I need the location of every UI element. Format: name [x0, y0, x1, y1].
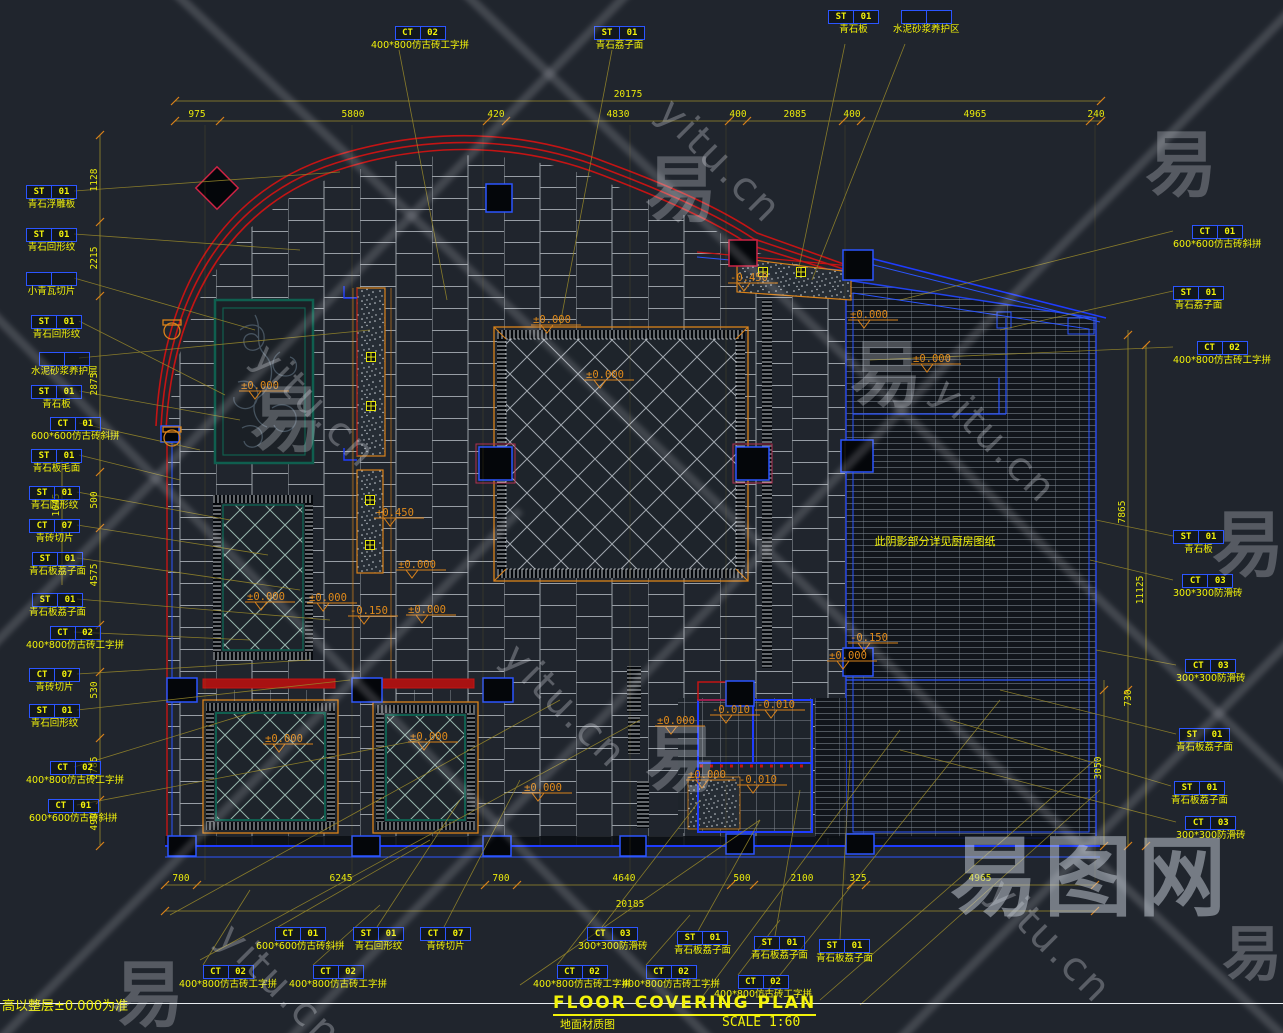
svg-text:-0.010: -0.010 — [739, 774, 777, 786]
svg-text:-0.150: -0.150 — [850, 632, 888, 644]
cad-canvas[interactable]: ±0.000 ±0.000 ±0.000 ±0.000 -0.450 +0.45… — [0, 0, 1283, 1033]
svg-text:±0.000: ±0.000 — [241, 380, 279, 392]
svg-text:2085: 2085 — [784, 109, 807, 120]
svg-text:4965: 4965 — [969, 873, 992, 884]
bottom-lattice-square-b — [373, 702, 478, 833]
material-label-right-5: CT03300*300防滑砖 — [1176, 659, 1246, 684]
material-label-top-3: 水泥砂浆养护区 — [893, 10, 960, 35]
svg-text:2215: 2215 — [89, 247, 100, 270]
svg-text:±0.000: ±0.000 — [913, 353, 951, 365]
svg-text:±0.000: ±0.000 — [657, 715, 695, 727]
material-label-left-12: CT02400*800仿古砖工字拼 — [26, 626, 124, 651]
tick-wall — [762, 300, 772, 668]
svg-text:±0.000: ±0.000 — [408, 604, 446, 616]
svg-text:±0.000: ±0.000 — [410, 731, 448, 743]
material-label-left-14: ST01青石回形纹 — [29, 704, 80, 729]
material-label-bottom-0: CT01600*600仿古砖斜拼 — [256, 927, 345, 952]
material-label-left-2: 小青瓦切片 — [26, 272, 77, 297]
svg-text:±0.000: ±0.000 — [829, 650, 867, 662]
material-label-left-15: CT02400*800仿古砖工字拼 — [26, 761, 124, 786]
material-label-bottom-7: CT02400*800仿古砖工字拼 — [179, 965, 277, 990]
svg-text:±0.000: ±0.000 — [309, 592, 347, 604]
svg-text:5800: 5800 — [342, 109, 365, 120]
svg-text:1128: 1128 — [89, 168, 100, 191]
material-label-left-3: ST01青石回形纹 — [31, 315, 82, 340]
bottom-lattice-square-a — [203, 700, 338, 833]
svg-text:±0.000: ±0.000 — [524, 782, 562, 794]
svg-text:530: 530 — [89, 681, 100, 698]
material-label-left-1: ST01青石回形纹 — [26, 228, 77, 253]
material-label-right-3: ST01青石板 — [1173, 530, 1224, 555]
svg-text:±0.000: ±0.000 — [533, 314, 571, 326]
svg-text:±0.000: ±0.000 — [688, 769, 726, 781]
material-label-bottom-9: CT02400*800仿古砖工字拼 — [533, 965, 631, 990]
svg-text:240: 240 — [1087, 109, 1104, 120]
svg-text:4640: 4640 — [613, 873, 636, 884]
material-label-top-1: ST01青石荔子面 — [594, 26, 645, 51]
svg-text:4575: 4575 — [89, 564, 100, 587]
material-label-left-6: CT01600*600仿古砖斜拼 — [31, 417, 120, 442]
material-label-bottom-1: ST01青石回形纹 — [353, 927, 404, 952]
datum-note: 高以整层±0.000为准 — [2, 995, 128, 1014]
svg-text:±0.000: ±0.000 — [850, 309, 888, 321]
svg-text:±0.000: ±0.000 — [586, 369, 624, 381]
svg-text:20185: 20185 — [616, 899, 645, 910]
svg-text:400: 400 — [729, 109, 746, 120]
material-label-top-2: ST01青石板 — [828, 10, 879, 35]
svg-text:-0.010: -0.010 — [757, 699, 795, 711]
svg-text:325: 325 — [849, 873, 866, 884]
material-label-left-5: ST01青石板 — [31, 385, 82, 410]
material-label-left-13: CT07青砖切片 — [29, 668, 80, 693]
drawing-title: FLOOR COVERING PLAN — [553, 993, 816, 1016]
material-label-right-4: CT03300*300防滑砖 — [1173, 574, 1243, 599]
svg-text:500: 500 — [89, 491, 100, 508]
svg-text:400: 400 — [843, 109, 860, 120]
material-label-right-2: CT02400*800仿古砖工字拼 — [1173, 341, 1271, 366]
material-label-bottom-2: CT07青砖切片 — [420, 927, 471, 952]
material-label-left-0: ST01青石浮雕板 — [26, 185, 77, 210]
material-label-bottom-8: CT02400*800仿古砖工字拼 — [289, 965, 387, 990]
svg-text:±0.000: ±0.000 — [247, 591, 285, 603]
svg-text:2100: 2100 — [791, 873, 814, 884]
material-label-left-11: ST01青石板荔子面 — [29, 593, 86, 618]
material-label-bottom-3: CT03300*300防滑砖 — [578, 927, 648, 952]
svg-text:-0.150: -0.150 — [350, 605, 388, 617]
kitchen-note: 此阴影部分详见厨房图纸 — [875, 534, 996, 548]
svg-text:6245: 6245 — [330, 873, 353, 884]
svg-text:730: 730 — [1123, 689, 1134, 706]
material-label-left-10: ST01青石板荔子面 — [29, 552, 86, 577]
svg-text:11125: 11125 — [1135, 576, 1146, 605]
svg-text:±0.000: ±0.000 — [398, 559, 436, 571]
material-label-bottom-6: ST01青石板荔子面 — [816, 939, 873, 964]
drawing-title-cn: 地面材质图 — [560, 1016, 615, 1032]
material-label-left-4: 水泥砂浆养护层 — [31, 352, 98, 377]
material-label-right-6: ST01青石板荔子面 — [1176, 728, 1233, 753]
svg-text:700: 700 — [492, 873, 509, 884]
svg-text:±0.000: ±0.000 — [265, 733, 303, 745]
svg-text:500: 500 — [733, 873, 750, 884]
drawing-scale: SCALE 1:60 — [722, 1015, 800, 1030]
material-label-right-8: CT03300*300防滑砖 — [1176, 816, 1246, 841]
floor-plan-drawing: ±0.000 ±0.000 ±0.000 ±0.000 -0.450 +0.45… — [0, 0, 1283, 1033]
svg-text:-0.450: -0.450 — [730, 272, 768, 284]
svg-text:3050: 3050 — [1093, 756, 1104, 779]
svg-text:7865: 7865 — [1117, 501, 1128, 524]
material-label-top-0: CT02400*800仿古砖工字拼 — [371, 26, 469, 51]
svg-text:420: 420 — [487, 109, 504, 120]
material-label-right-1: ST01青石荔子面 — [1173, 286, 1224, 311]
svg-text:-0.010: -0.010 — [712, 704, 750, 716]
material-label-bottom-4: ST01青石板荔子面 — [674, 931, 731, 956]
material-label-left-16: CT01600*600仿古砖斜拼 — [29, 799, 118, 824]
material-label-bottom-10: CT02400*800仿古砖工字拼 — [622, 965, 720, 990]
svg-text:+0.450: +0.450 — [376, 507, 414, 519]
svg-text:700: 700 — [172, 873, 189, 884]
svg-text:20175: 20175 — [614, 89, 643, 100]
material-label-left-7: ST01青石板毛面 — [31, 449, 82, 474]
material-label-right-0: CT01600*600仿古砖斜拼 — [1173, 225, 1262, 250]
central-inlay — [494, 327, 748, 581]
material-label-left-9: CT07青砖切片 — [29, 519, 80, 544]
svg-text:4965: 4965 — [964, 109, 987, 120]
material-label-right-7: ST01青石板荔子面 — [1171, 781, 1228, 806]
svg-text:975: 975 — [188, 109, 205, 120]
svg-text:4830: 4830 — [607, 109, 630, 120]
material-label-bottom-5: ST01青石板荔子面 — [751, 936, 808, 961]
material-label-left-8: ST01青石回形纹 — [29, 486, 80, 511]
